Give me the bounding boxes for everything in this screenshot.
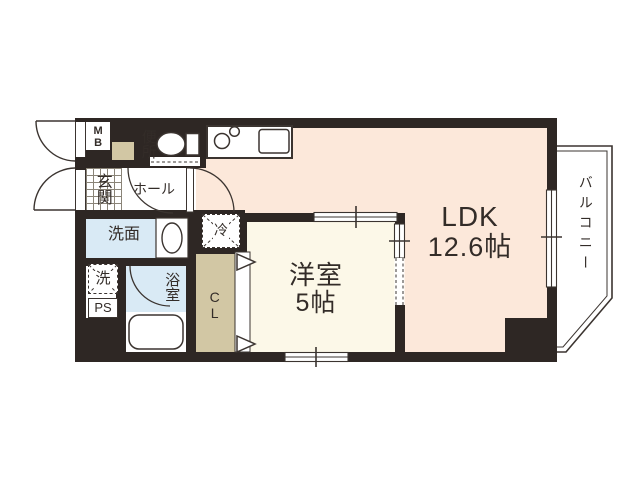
closet-label: CL: [203, 282, 225, 328]
floor-plan: MB 便所 玄関 ホール 洗面 洗 PS 浴室 冷 CL 洋室5帖 LDK12.…: [0, 0, 640, 480]
bedroom-top-window: [314, 206, 397, 228]
ldk-label: LDK12.6帖: [398, 198, 542, 266]
ldk-balcony-window: [541, 190, 562, 287]
washer-label: 洗: [88, 266, 118, 292]
bedroom-label: 洋室5帖: [240, 252, 392, 326]
washroom-label: 洗面: [98, 225, 150, 245]
entrance-door-swing-arc: [34, 168, 75, 210]
washbasin-icon: [156, 218, 188, 258]
meter-box-label: MB: [87, 123, 109, 150]
ldk-door-swing-arc: [190, 168, 234, 212]
refrigerator-label: 冷: [202, 217, 240, 245]
bathtub-icon: [129, 315, 183, 349]
toilet-icon: [157, 133, 199, 156]
fixtures-overlay: [0, 0, 640, 480]
kitchen-counter-icon: [207, 126, 292, 158]
pipe-space-label: PS: [88, 298, 118, 318]
bedroom-bottom-window: [285, 347, 348, 367]
ldk-door-leaf: [187, 168, 194, 212]
hall-label: ホール: [124, 181, 184, 199]
balcony-label: バルコニー: [572, 150, 598, 300]
entrance-label: 玄関: [92, 169, 112, 209]
meter-box-door-swing-arc: [36, 121, 75, 161]
bathroom-label: 浴室: [161, 266, 181, 308]
toilet-label: 便所: [138, 125, 157, 163]
